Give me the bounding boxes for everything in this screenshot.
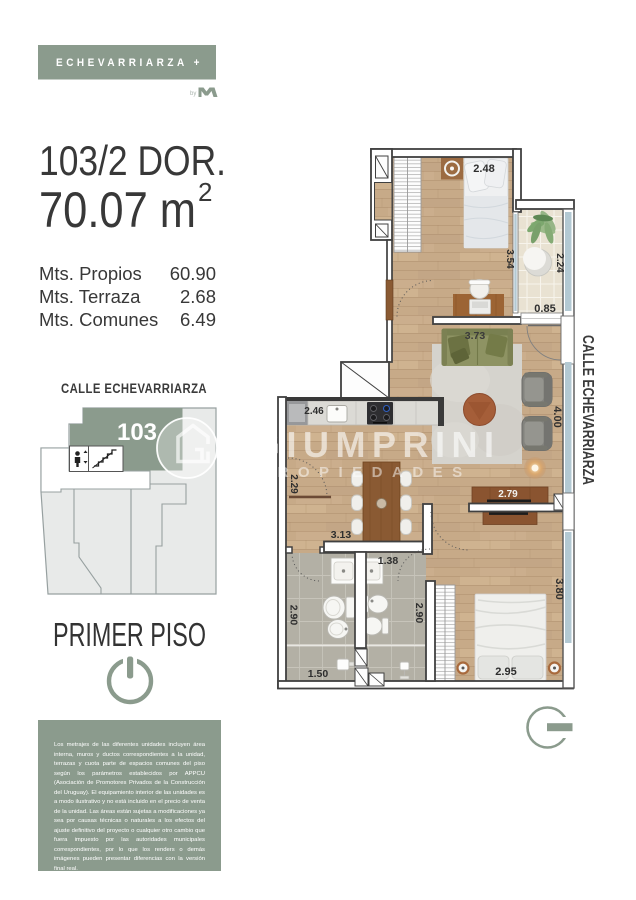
svg-text:2.90: 2.90 <box>413 603 425 624</box>
svg-text:3.73: 3.73 <box>465 330 486 342</box>
svg-text:4.00: 4.00 <box>551 406 563 427</box>
svg-text:2.46: 2.46 <box>304 406 324 417</box>
svg-text:3.13: 3.13 <box>331 529 352 541</box>
svg-text:3.80: 3.80 <box>553 578 565 599</box>
svg-text:2: 2 <box>198 177 212 207</box>
svg-text:Mts. Terraza: Mts. Terraza <box>39 286 141 307</box>
svg-text:1.38: 1.38 <box>378 555 399 567</box>
svg-text:0.85: 0.85 <box>534 303 555 315</box>
svg-text:3.54: 3.54 <box>504 249 515 269</box>
svg-text:CALLE ECHEVARRIARZA: CALLE ECHEVARRIARZA <box>61 381 207 396</box>
svg-text:2.48: 2.48 <box>473 163 494 175</box>
svg-text:CALLE ECHEVARRIARZA: CALLE ECHEVARRIARZA <box>579 335 596 485</box>
svg-text:Mts. Propios: Mts. Propios <box>39 263 142 284</box>
svg-text:2.95: 2.95 <box>495 666 516 678</box>
svg-text:60.90: 60.90 <box>170 263 216 284</box>
svg-text:by: by <box>190 91 196 97</box>
svg-text:PROPIEDADES: PROPIEDADES <box>258 464 472 481</box>
svg-text:ECHEVARRIARZA +: ECHEVARRIARZA + <box>56 57 203 69</box>
svg-text:2.79: 2.79 <box>498 489 518 500</box>
svg-text:Mts. Comunes: Mts. Comunes <box>39 309 158 330</box>
svg-text:GIUMPRINI: GIUMPRINI <box>252 424 501 465</box>
svg-text:PRIMER PISO: PRIMER PISO <box>53 616 206 653</box>
svg-text:2.90: 2.90 <box>288 605 300 626</box>
svg-text:70.07 m: 70.07 m <box>39 182 196 238</box>
svg-text:6.49: 6.49 <box>180 309 216 330</box>
svg-text:2.24: 2.24 <box>554 253 565 273</box>
svg-text:1.50: 1.50 <box>308 668 329 680</box>
svg-text:2.68: 2.68 <box>180 286 216 307</box>
svg-text:103: 103 <box>117 419 157 446</box>
